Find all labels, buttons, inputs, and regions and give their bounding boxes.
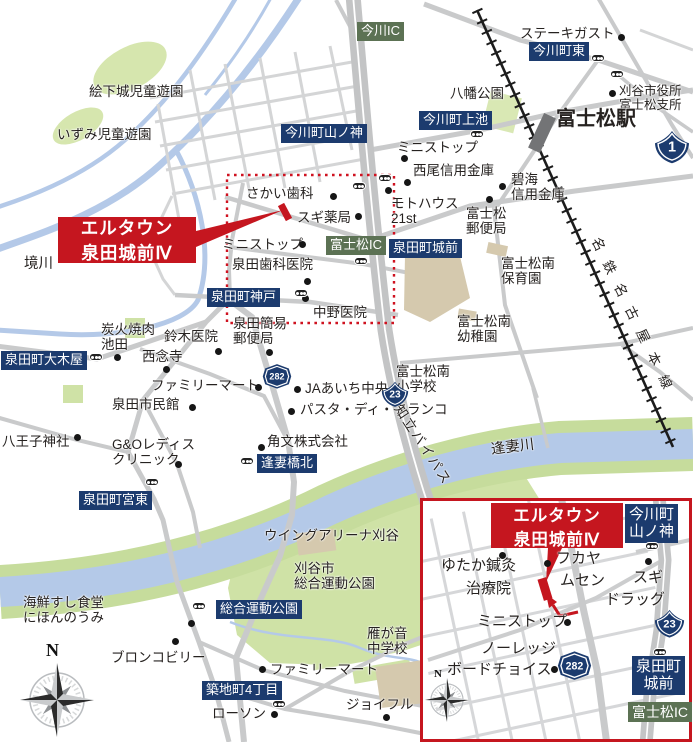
svg-text:23: 23 bbox=[389, 389, 401, 400]
place-label: 富士松郵便局 bbox=[466, 206, 507, 236]
intersection-badge: 泉田町城前 bbox=[632, 656, 685, 695]
poi-dot bbox=[544, 560, 551, 567]
place-label: 逢妻川 bbox=[490, 437, 535, 458]
route-shield: 282 bbox=[557, 650, 592, 686]
poi-dot bbox=[258, 444, 265, 451]
place-label: ステーキガスト bbox=[520, 26, 615, 41]
poi-dot bbox=[645, 558, 652, 565]
place-label: ゆたか鍼灸 bbox=[441, 558, 516, 575]
place-label: 泉田簡易郵便局 bbox=[233, 316, 287, 346]
place-label: いずみ児童遊園 bbox=[57, 127, 152, 142]
place-label: ジョイフル bbox=[346, 697, 414, 712]
place-label: パスタ・ディ・フランコ bbox=[300, 402, 448, 417]
intersection-badge: 今川IC bbox=[357, 22, 404, 41]
poi-dot bbox=[259, 666, 266, 673]
poi-dot bbox=[618, 34, 625, 41]
poi-dot bbox=[304, 278, 311, 285]
access-map: エルタウン 泉田城前Ⅳ エルタウン 泉田城前Ⅳ N N bbox=[0, 0, 693, 742]
place-label: 鈴木医院 bbox=[164, 329, 218, 344]
place-label: フカヤ bbox=[556, 551, 601, 568]
place-label: スギ bbox=[633, 570, 663, 587]
intersection-badge: 泉田町神戸 bbox=[207, 288, 280, 307]
traffic-light-icon bbox=[272, 700, 286, 708]
place-label: 絵下城児童遊園 bbox=[89, 84, 184, 99]
place-label: モトハウス21st bbox=[391, 196, 459, 226]
route-shield: 282 bbox=[262, 363, 292, 395]
poi-dot bbox=[299, 241, 306, 248]
map-labels-layer: 絵下城児童遊園いずみ児童遊園ステーキガスト刈谷市役所富士松支所八幡公園富士松駅ミ… bbox=[0, 0, 693, 742]
poi-dot bbox=[271, 711, 278, 718]
route-shield: 23 bbox=[381, 381, 409, 412]
place-label: 名鉄名古屋本線 bbox=[588, 235, 680, 402]
intersection-badge: 築地町4丁目 bbox=[202, 681, 282, 700]
traffic-light-icon bbox=[354, 257, 368, 265]
place-label: 刈谷市総合運動公園 bbox=[294, 561, 375, 591]
traffic-light-icon bbox=[240, 457, 254, 465]
place-label: ドラッグ bbox=[605, 592, 665, 609]
intersection-badge: 今川町山ノ神 bbox=[281, 124, 367, 143]
place-label: ファミリーマート bbox=[270, 662, 378, 677]
traffic-light-icon bbox=[378, 174, 392, 182]
intersection-badge: 逢妻橋北 bbox=[257, 454, 317, 473]
place-label: 炭火焼肉池田 bbox=[101, 322, 155, 352]
place-label: ボードチョイス bbox=[447, 662, 552, 679]
traffic-light-icon bbox=[610, 70, 624, 78]
poi-dot bbox=[188, 620, 195, 627]
poi-dot bbox=[294, 386, 301, 393]
intersection-badge: 今川町山ノ神 bbox=[625, 504, 678, 543]
intersection-badge: 富士松IC bbox=[628, 702, 692, 722]
place-label: 八幡公園 bbox=[450, 86, 504, 101]
place-label: 西尾信用金庫 bbox=[413, 163, 494, 178]
traffic-light-icon bbox=[89, 353, 103, 361]
poi-dot bbox=[288, 408, 295, 415]
place-label: ファミリーマート bbox=[151, 378, 259, 393]
poi-dot bbox=[172, 638, 179, 645]
place-label: ミニストップ bbox=[222, 237, 303, 252]
traffic-light-icon bbox=[192, 602, 206, 610]
poi-dot bbox=[383, 714, 390, 721]
place-label: ブロンコビリー bbox=[111, 650, 206, 665]
place-label: 治療院 bbox=[466, 581, 511, 598]
place-label: JAあいち中央 bbox=[305, 381, 388, 396]
place-label: 境川 bbox=[24, 256, 53, 272]
place-label: ウイングアリーナ刈谷 bbox=[264, 528, 399, 543]
poi-dot bbox=[404, 179, 411, 186]
poi-dot bbox=[175, 461, 182, 468]
svg-text:23: 23 bbox=[663, 619, 675, 631]
intersection-badge: 泉田町宮東 bbox=[79, 491, 152, 510]
intersection-badge: 泉田町大木屋 bbox=[1, 351, 87, 370]
place-label: ムセン bbox=[560, 573, 605, 590]
route-shield: 1 bbox=[654, 130, 690, 169]
place-label: 富士松南保育園 bbox=[501, 256, 555, 286]
place-label: ミニストップ bbox=[477, 614, 567, 631]
route-shield: 23 bbox=[654, 609, 685, 643]
svg-text:282: 282 bbox=[269, 371, 284, 381]
poi-dot bbox=[266, 349, 273, 356]
place-label: 泉田歯科医院 bbox=[232, 257, 313, 272]
place-label: 雁が音中学校 bbox=[367, 626, 408, 656]
poi-dot bbox=[401, 155, 408, 162]
place-label: 八王子神社 bbox=[2, 434, 70, 449]
poi-dot bbox=[189, 404, 196, 411]
traffic-light-icon bbox=[591, 54, 605, 62]
place-label: さかい歯科 bbox=[246, 186, 314, 201]
place-label: 碧海信用金庫 bbox=[511, 172, 565, 202]
poi-dot bbox=[355, 213, 362, 220]
traffic-light-icon bbox=[470, 130, 484, 138]
poi-dot bbox=[163, 366, 170, 373]
place-label: スギ薬局 bbox=[297, 210, 351, 225]
poi-dot bbox=[114, 354, 121, 361]
place-label: 西念寺 bbox=[142, 349, 183, 364]
traffic-light-icon bbox=[145, 478, 159, 486]
place-label: 海鮮すし食堂にほんのうみ bbox=[23, 595, 104, 625]
place-label: 中野医院 bbox=[313, 305, 367, 320]
poi-dot bbox=[255, 384, 262, 391]
intersection-badge: 総合運動公園 bbox=[216, 600, 302, 619]
place-label: ミニストップ bbox=[397, 140, 478, 155]
place-label: 角文株式会社 bbox=[267, 434, 348, 449]
traffic-light-icon bbox=[645, 542, 659, 550]
place-label: 泉田市民館 bbox=[112, 397, 180, 412]
intersection-badge: 富士松IC bbox=[326, 236, 386, 255]
traffic-light-icon bbox=[653, 648, 667, 656]
place-label: G&Oレディスクリニック bbox=[112, 437, 195, 467]
poi-dot bbox=[215, 348, 222, 355]
traffic-light-icon bbox=[352, 182, 366, 190]
poi-dot bbox=[564, 619, 571, 626]
place-label: 富士松南幼稚園 bbox=[457, 314, 511, 344]
poi-dot bbox=[74, 434, 81, 441]
place-label: ローソン bbox=[212, 706, 266, 721]
poi-dot bbox=[486, 196, 493, 203]
intersection-badge: 泉田町城前 bbox=[389, 239, 462, 258]
intersection-badge: 今川町東 bbox=[529, 42, 589, 61]
place-label: ノーレッジ bbox=[481, 641, 556, 658]
poi-dot bbox=[385, 187, 392, 194]
poi-dot bbox=[499, 552, 506, 559]
intersection-badge: 今川町上池 bbox=[419, 111, 492, 130]
poi-dot bbox=[499, 183, 506, 190]
poi-dot bbox=[609, 90, 616, 97]
traffic-light-icon bbox=[294, 289, 308, 297]
poi-dot bbox=[330, 193, 337, 200]
svg-text:1: 1 bbox=[668, 140, 676, 156]
svg-text:282: 282 bbox=[565, 661, 583, 673]
place-label: 富士松駅 bbox=[556, 108, 636, 130]
